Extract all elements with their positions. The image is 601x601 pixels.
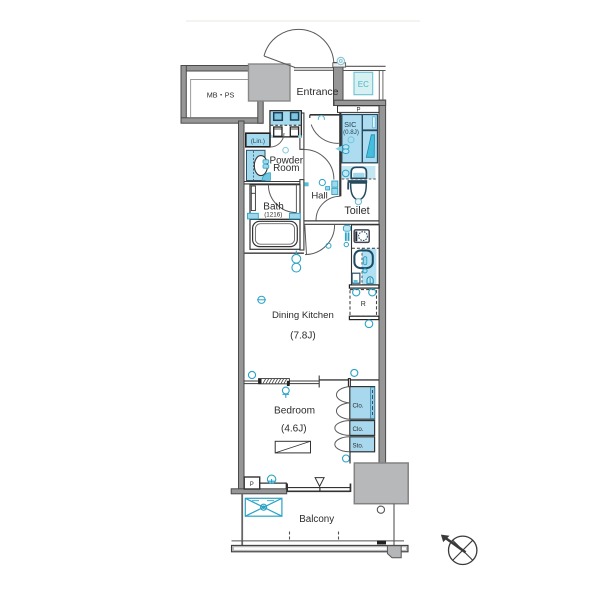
svg-text:Sto.: Sto. <box>352 443 363 450</box>
svg-text:(1216): (1216) <box>264 211 282 218</box>
svg-text:Clo.: Clo. <box>352 402 363 409</box>
svg-text:MB・PS: MB・PS <box>207 91 235 100</box>
svg-text:Bedroom: Bedroom <box>274 405 315 416</box>
svg-text:(7.8J): (7.8J) <box>290 331 316 342</box>
svg-text:Room: Room <box>273 163 299 174</box>
svg-text:P: P <box>356 107 360 113</box>
svg-text:Clo.: Clo. <box>352 426 363 433</box>
svg-text:R: R <box>361 301 366 308</box>
svg-text:Balcony: Balcony <box>299 514 334 525</box>
svg-text:P: P <box>250 482 254 488</box>
svg-text:SIC: SIC <box>344 120 357 129</box>
svg-text:Hall: Hall <box>311 190 327 201</box>
svg-text:(0.8J): (0.8J) <box>343 129 359 136</box>
svg-text:EC: EC <box>358 80 369 89</box>
svg-text:(4.6J): (4.6J) <box>281 423 307 434</box>
svg-text:(Lin.): (Lin.) <box>251 138 265 145</box>
svg-text:Toilet: Toilet <box>344 205 369 217</box>
svg-text:Dining Kitchen: Dining Kitchen <box>272 310 334 321</box>
svg-text:Entrance: Entrance <box>296 86 338 98</box>
